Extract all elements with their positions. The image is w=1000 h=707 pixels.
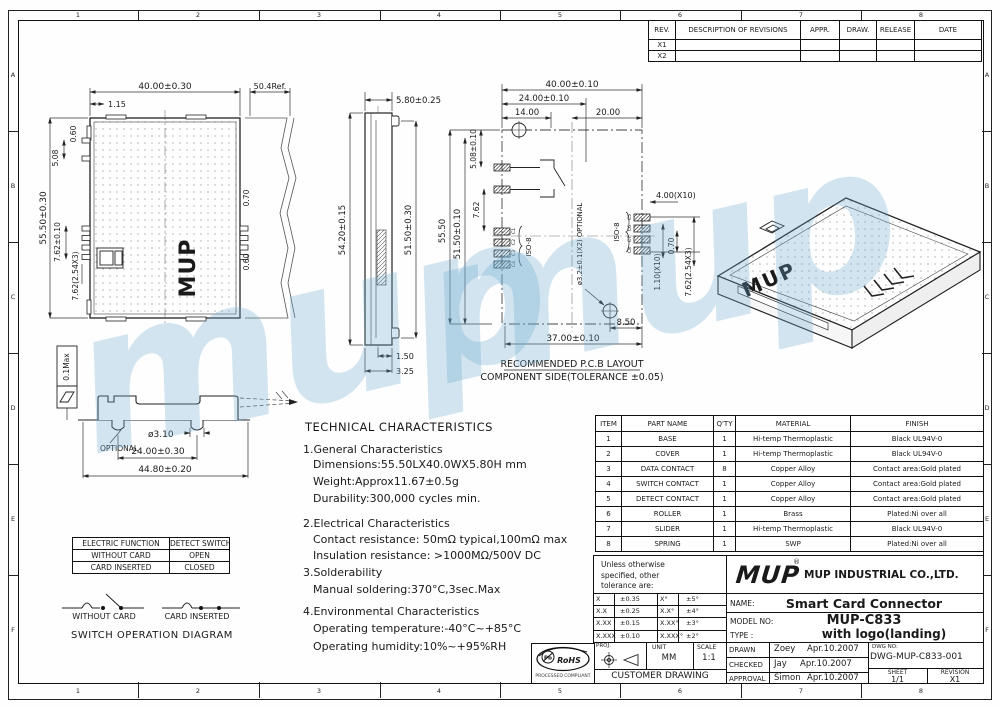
electric-header: ELECTRIC FUNCTION xyxy=(73,538,170,550)
customer-drawing-label: CUSTOMER DRAWING xyxy=(594,671,726,681)
scale-value: 1:1 xyxy=(694,653,724,663)
revision-header: DESCRIPTION OF REVISIONS xyxy=(676,21,801,40)
dim-front-070: 0.70 xyxy=(242,189,251,206)
electric-header: DETECT SWITCH xyxy=(170,538,230,550)
revision-cell xyxy=(840,51,877,62)
zone-tick xyxy=(8,242,18,243)
tech-section: 1.General Characteristics xyxy=(303,443,443,456)
tech-item: Operating temperature:-40°C~+85°C xyxy=(313,622,521,635)
dim-foot-dia: ø3.10 xyxy=(148,430,174,440)
checked-label: CHECKED xyxy=(729,661,763,669)
side-body xyxy=(365,113,392,345)
type-value: with logo(landing) xyxy=(794,627,974,641)
revision-value: X1 xyxy=(927,675,983,684)
revision-cell xyxy=(915,51,982,62)
switch-pads xyxy=(494,164,510,193)
switch-open-label: WITHOUT CARD xyxy=(54,612,154,621)
dim-optional-hole: ø3.2±0.1(X2) OPTIONAL xyxy=(576,203,584,286)
sheet-value: 1/1 xyxy=(868,675,927,684)
revision-table: REV. DESCRIPTION OF REVISIONS APPR. DRAW… xyxy=(648,20,982,62)
dim-pcb-508: 5.08±0.10 xyxy=(469,129,478,169)
switch-closed-label: CARD INSERTED xyxy=(147,612,247,621)
unit-value: MM xyxy=(649,653,689,663)
parts-cell: 1 xyxy=(596,432,622,447)
pad-label: C7 xyxy=(627,236,633,242)
parts-cell: 4 xyxy=(596,477,622,492)
parts-cell: Black UL94V-0 xyxy=(851,522,984,537)
dwg-no-value: DWG-MUP-C833-001 xyxy=(870,652,963,662)
parts-cell: 8 xyxy=(714,462,736,477)
mup-logo-front: MUP xyxy=(176,239,201,298)
tech-section: 3.Solderability xyxy=(303,566,382,579)
iso8-label-left: ISO-8 xyxy=(525,237,533,256)
parts-cell: Contact area:Gold plated xyxy=(851,477,984,492)
parts-cell: ROLLER xyxy=(622,507,714,522)
zone-tick xyxy=(500,682,501,698)
tol-cell: ±3° xyxy=(686,619,699,627)
parts-header: PART NAME xyxy=(622,416,714,432)
dim-pcb-5150: 51.50±0.10 xyxy=(453,209,463,259)
dim-side-150: 1.50 xyxy=(396,352,414,361)
dim-pcb-20: 20.00 xyxy=(596,108,620,118)
revision-cell xyxy=(676,51,801,62)
tol-cell: ±4° xyxy=(686,607,699,615)
zone-label: 2 xyxy=(188,686,208,696)
zone-tick xyxy=(259,10,260,20)
tol-cell: X.XX° xyxy=(660,619,679,627)
parts-cell: Copper Alloy xyxy=(736,477,851,492)
pcb-caption-2: COMPONENT SIDE(TOLERANCE ±0.05) xyxy=(480,372,663,383)
technical-characteristics: TECHNICAL CHARACTERISTICS 1.General Char… xyxy=(303,414,593,664)
parts-cell: 1 xyxy=(714,447,736,462)
zone-label: 7 xyxy=(791,10,811,20)
dim-bottom-448: 44.80±0.20 xyxy=(138,465,192,475)
revision-mark: X2 xyxy=(649,51,676,62)
parts-cell: 1 xyxy=(714,507,736,522)
revision-cell xyxy=(801,51,840,62)
datum-hole xyxy=(510,121,528,139)
isometric-view-drawing: MUP xyxy=(688,178,988,373)
pad-label: C2 xyxy=(511,239,517,245)
parts-cell: Copper Alloy xyxy=(736,462,851,477)
electric-cell: CLOSED xyxy=(170,562,230,574)
registered-mark: ® xyxy=(793,558,800,566)
tech-item: Operating humidity:10%~+95%RH xyxy=(313,640,506,653)
electric-cell: WITHOUT CARD xyxy=(73,550,170,562)
zone-tick xyxy=(8,464,18,465)
dim-front-060-right: 0.60 xyxy=(242,253,251,270)
contact-pads-left xyxy=(494,228,510,268)
tech-title: TECHNICAL CHARACTERISTICS xyxy=(305,420,493,434)
scale-label: SCALE xyxy=(697,644,716,651)
zone-tick xyxy=(8,131,18,132)
zone-tick xyxy=(138,10,139,20)
card-reference-outline xyxy=(245,118,296,318)
parts-cell: SWITCH CONTACT xyxy=(622,477,714,492)
parts-header: ITEM xyxy=(596,416,622,432)
product-name: Smart Card Connector xyxy=(754,596,974,611)
drawn-name: Zoey xyxy=(774,644,795,654)
approval-label: APPROVAL xyxy=(729,675,766,683)
dim-front-060-top: 0.60 xyxy=(69,125,78,142)
parts-cell: Contact area:Gold plated xyxy=(851,462,984,477)
tolerance-note-line: Unless otherwise xyxy=(601,560,721,571)
zone-tick xyxy=(259,682,260,698)
zone-label: 4 xyxy=(429,10,449,20)
parts-cell: DETECT CONTACT xyxy=(622,492,714,507)
profile-view-drawing: 0.1Max ø3.10 OPTIONAL 24.00±0.30 44.80±0… xyxy=(48,340,323,510)
revision-cell xyxy=(801,40,840,51)
zone-label: B xyxy=(8,181,18,191)
front-view-drawing: MUP 40.00±0.30 50.4Ref. 1.15 55.50±0.30 … xyxy=(38,78,308,343)
model-value: MUP-C833 xyxy=(774,613,954,628)
parts-cell: Plated:Ni over all xyxy=(851,507,984,522)
zone-label: 6 xyxy=(670,10,690,20)
parts-cell: BASE xyxy=(622,432,714,447)
tol-cell: ±0.15 xyxy=(620,619,640,627)
pcb-caption-1: RECOMMENDED P.C.B LAYOUT xyxy=(500,359,643,370)
zone-tick xyxy=(861,682,862,698)
zone-label: D xyxy=(8,403,18,413)
tolerance-note-line: specified, other xyxy=(601,571,721,582)
revision-cell xyxy=(877,51,915,62)
company-name: MUP INDUSTRIAL CO.,LTD. xyxy=(804,569,959,581)
switch-cutout xyxy=(97,248,123,268)
parts-cell: SPRING xyxy=(622,537,714,552)
electric-cell: CARD INSERTED xyxy=(73,562,170,574)
zone-tick xyxy=(8,353,18,354)
zone-tick xyxy=(741,682,742,698)
parts-cell: 2 xyxy=(596,447,622,462)
tol-cell: ±2° xyxy=(686,632,699,640)
type-label: TYPE : xyxy=(730,631,753,640)
revision-mark: X1 xyxy=(649,40,676,51)
dim-pcb-24: 24.00±0.10 xyxy=(519,94,569,104)
pad-label: C3 xyxy=(511,250,517,256)
rohs-caption: PROCESSED COMPLIANT xyxy=(532,674,594,679)
checked-date: Apr.10.2007 xyxy=(800,659,852,669)
parts-cell: SLIDER xyxy=(622,522,714,537)
tol-cell: X.XXX° xyxy=(660,632,683,640)
zone-label: F xyxy=(8,625,18,635)
mup-logo-titleblock: MUP xyxy=(735,561,802,589)
zone-label: 5 xyxy=(550,686,570,696)
parts-cell: 1 xyxy=(714,432,736,447)
tol-cell: X.XX xyxy=(596,619,611,627)
tol-cell: ±0.10 xyxy=(620,632,640,640)
parts-cell: Hi-temp Thermoplastic xyxy=(736,447,851,462)
zone-label: E xyxy=(8,514,18,524)
dim-side-325: 3.25 xyxy=(396,367,414,376)
profile-body xyxy=(98,396,238,420)
dim-front-height: 55.50±0.30 xyxy=(39,191,49,245)
rohs-logo: Pb RoHS xyxy=(535,646,591,672)
iso-detail-window xyxy=(760,221,784,233)
parts-cell: Black UL94V-0 xyxy=(851,447,984,462)
model-label: MODEL NO: xyxy=(730,617,773,626)
electric-function-table: ELECTRIC FUNCTION DETECT SWITCH WITHOUT … xyxy=(72,537,230,574)
approval-name: Simon xyxy=(774,673,801,683)
parts-cell: Contact area:Gold plated xyxy=(851,492,984,507)
dwg-no-label: DWG NO: xyxy=(872,644,898,650)
parts-cell: COVER xyxy=(622,447,714,462)
drawn-label: DRAWN xyxy=(729,646,756,654)
dim-front-width: 40.00±0.30 xyxy=(138,82,192,92)
tolerance-note: Unless otherwise specified, other tolera… xyxy=(601,560,721,592)
tech-item: Durability:300,000 cycles min. xyxy=(313,492,480,505)
zone-label: D xyxy=(982,403,992,413)
zone-label: 8 xyxy=(911,10,931,20)
tol-cell: X xyxy=(596,595,600,603)
switch-diagram-caption: SWITCH OPERATION DIAGRAM xyxy=(62,630,242,641)
parts-cell: SWP xyxy=(736,537,851,552)
tolerance-note-line: tolerance are: xyxy=(601,581,721,592)
zone-tick xyxy=(8,575,18,576)
flatness-value: 0.1Max xyxy=(62,353,71,381)
revision-header: DRAW. xyxy=(840,21,877,40)
zone-label: 2 xyxy=(188,10,208,20)
zone-label: 3 xyxy=(309,10,329,20)
parts-cell: 5 xyxy=(596,492,622,507)
zone-tick xyxy=(741,10,742,20)
pad-label: C4 xyxy=(511,261,517,267)
tol-cell: X.X° xyxy=(660,607,674,615)
iso8-label-right: ISO-8 xyxy=(613,222,621,241)
dim-pcb-070: 0.70 xyxy=(667,237,676,254)
right-foot xyxy=(191,420,203,430)
parts-cell: 1 xyxy=(714,477,736,492)
revision-cell xyxy=(877,40,915,51)
zone-label: 6 xyxy=(670,686,690,696)
parts-cell: 1 xyxy=(714,537,736,552)
dim-front-508: 5.08 xyxy=(51,149,60,166)
tech-section: 4.Environmental Characteristics xyxy=(303,605,479,618)
dim-front-offset: 1.15 xyxy=(108,100,126,109)
pcb-layout-drawing: C1 C2 C3 C4 ISO-8 C5 C6 C7 C8 ISO-8 ø3.2… xyxy=(432,76,717,406)
pad-label: C1 xyxy=(511,228,517,234)
parts-cell: Hi-temp Thermoplastic xyxy=(736,522,851,537)
tech-item: Manual soldering:370°C,3sec.Max xyxy=(313,583,500,596)
dim-pcb-width: 40.00±0.10 xyxy=(545,80,599,90)
zone-label: 1 xyxy=(68,686,88,696)
left-foot xyxy=(112,420,124,430)
dim-bottom-24: 24.00±0.30 xyxy=(131,447,185,457)
revision-header: DATE xyxy=(915,21,982,40)
zone-tick xyxy=(861,10,862,20)
revision-header: REV. xyxy=(649,21,676,40)
zone-tick xyxy=(982,131,992,132)
rohs-box: Pb RoHS PROCESSED COMPLIANT xyxy=(531,643,595,684)
side-slider xyxy=(377,230,386,285)
parts-table: ITEM PART NAME Q'TY MATERIAL FINISH 1BAS… xyxy=(595,415,984,552)
parts-cell: 1 xyxy=(714,522,736,537)
proj-label: PROJ. xyxy=(596,643,611,649)
pb-text: Pb xyxy=(544,656,552,662)
tol-cell: ±5° xyxy=(686,595,699,603)
dim-pcb-37: 37.00±0.10 xyxy=(546,334,600,344)
tech-item: Weight:Approx11.67±0.5g xyxy=(313,475,459,488)
tol-cell: X° xyxy=(660,595,668,603)
electric-cell: OPEN xyxy=(170,550,230,562)
zone-label: C xyxy=(8,292,18,302)
detect-switch-symbol xyxy=(510,160,565,197)
parts-cell: 3 xyxy=(596,462,622,477)
iso8-brace-left xyxy=(519,226,522,266)
zone-tick xyxy=(380,682,381,698)
parts-cell: 8 xyxy=(596,537,622,552)
zone-label: A xyxy=(8,70,18,80)
approval-date: Apr.10.2007 xyxy=(807,673,859,683)
projection-symbol xyxy=(600,652,642,668)
rohs-text: RoHS xyxy=(557,656,581,665)
zone-label: 5 xyxy=(550,10,570,20)
tol-cell: X.X xyxy=(596,607,607,615)
tol-cell: ±0.35 xyxy=(620,595,640,603)
name-label: NAME: xyxy=(730,599,754,608)
switch-open-symbol xyxy=(62,594,144,608)
zone-label: 4 xyxy=(429,686,449,696)
parts-cell: DATA CONTACT xyxy=(622,462,714,477)
dim-pcb-762: 7.62 xyxy=(472,201,481,218)
zone-tick xyxy=(620,682,621,698)
drawing-sheet: 1 2 3 4 5 6 7 8 1 2 3 4 5 6 7 8 A B C D … xyxy=(0,0,1000,707)
parts-cell: Hi-temp Thermoplastic xyxy=(736,432,851,447)
parts-cell: Black UL94V-0 xyxy=(851,432,984,447)
dim-side-right: 51.50±0.30 xyxy=(404,205,414,255)
checked-name: Jay xyxy=(774,659,787,669)
zone-label: 1 xyxy=(68,10,88,20)
revision-header: APPR. xyxy=(801,21,840,40)
zone-label: 8 xyxy=(911,686,931,696)
tol-cell: X.XXX xyxy=(596,632,616,640)
title-block: Unless otherwise specified, other tolera… xyxy=(593,555,984,684)
revision-cell xyxy=(840,40,877,51)
dim-pcb-850: 8.50 xyxy=(617,318,636,328)
parts-cell: 6 xyxy=(596,507,622,522)
parts-cell: 1 xyxy=(714,492,736,507)
zone-tick xyxy=(500,10,501,20)
parts-cell: Plated:Ni over all xyxy=(851,537,984,552)
dim-pcb-110: 1.10(X10) xyxy=(653,253,662,290)
parts-cell: Brass xyxy=(736,507,851,522)
zone-tick xyxy=(380,10,381,20)
dim-front-762: 7.62±0.10 xyxy=(53,222,62,262)
revision-cell xyxy=(676,40,801,51)
tech-item: Insulation resistance: >1000MΩ/500V DC xyxy=(313,549,541,562)
zone-label: A xyxy=(982,70,992,80)
dim-front-ref: 50.4Ref. xyxy=(254,82,287,91)
dim-side-left: 54.20±0.15 xyxy=(338,205,348,255)
parts-cell: Copper Alloy xyxy=(736,492,851,507)
zone-tick xyxy=(138,682,139,698)
parts-header: MATERIAL xyxy=(736,416,851,432)
revision-header: RELEASE xyxy=(877,21,915,40)
parts-header: Q'TY xyxy=(714,416,736,432)
connector-body xyxy=(90,118,240,318)
revision-cell xyxy=(915,40,982,51)
zone-tick xyxy=(620,10,621,20)
tol-cell: ±0.25 xyxy=(620,607,640,615)
parts-cell: 7 xyxy=(596,522,622,537)
zone-label: 7 xyxy=(791,686,811,696)
tech-section: 2.Electrical Characteristics xyxy=(303,517,450,530)
break-extension xyxy=(240,391,294,407)
tech-item: Dimensions:55.50LX40.0WX5.80H mm xyxy=(313,458,527,471)
drawn-date: Apr.10.2007 xyxy=(807,644,859,654)
dim-front-762b: 7.62(2.54X3) xyxy=(71,251,80,300)
unit-label: UNIT xyxy=(652,644,666,651)
zone-label: 3 xyxy=(309,686,329,696)
dim-pcb-14: 14.00 xyxy=(515,108,539,118)
tech-item: Contact resistance: 50mΩ typical,100mΩ m… xyxy=(313,533,567,546)
dim-pcb-height: 55.50 xyxy=(438,219,448,243)
parts-header: FINISH xyxy=(851,416,984,432)
